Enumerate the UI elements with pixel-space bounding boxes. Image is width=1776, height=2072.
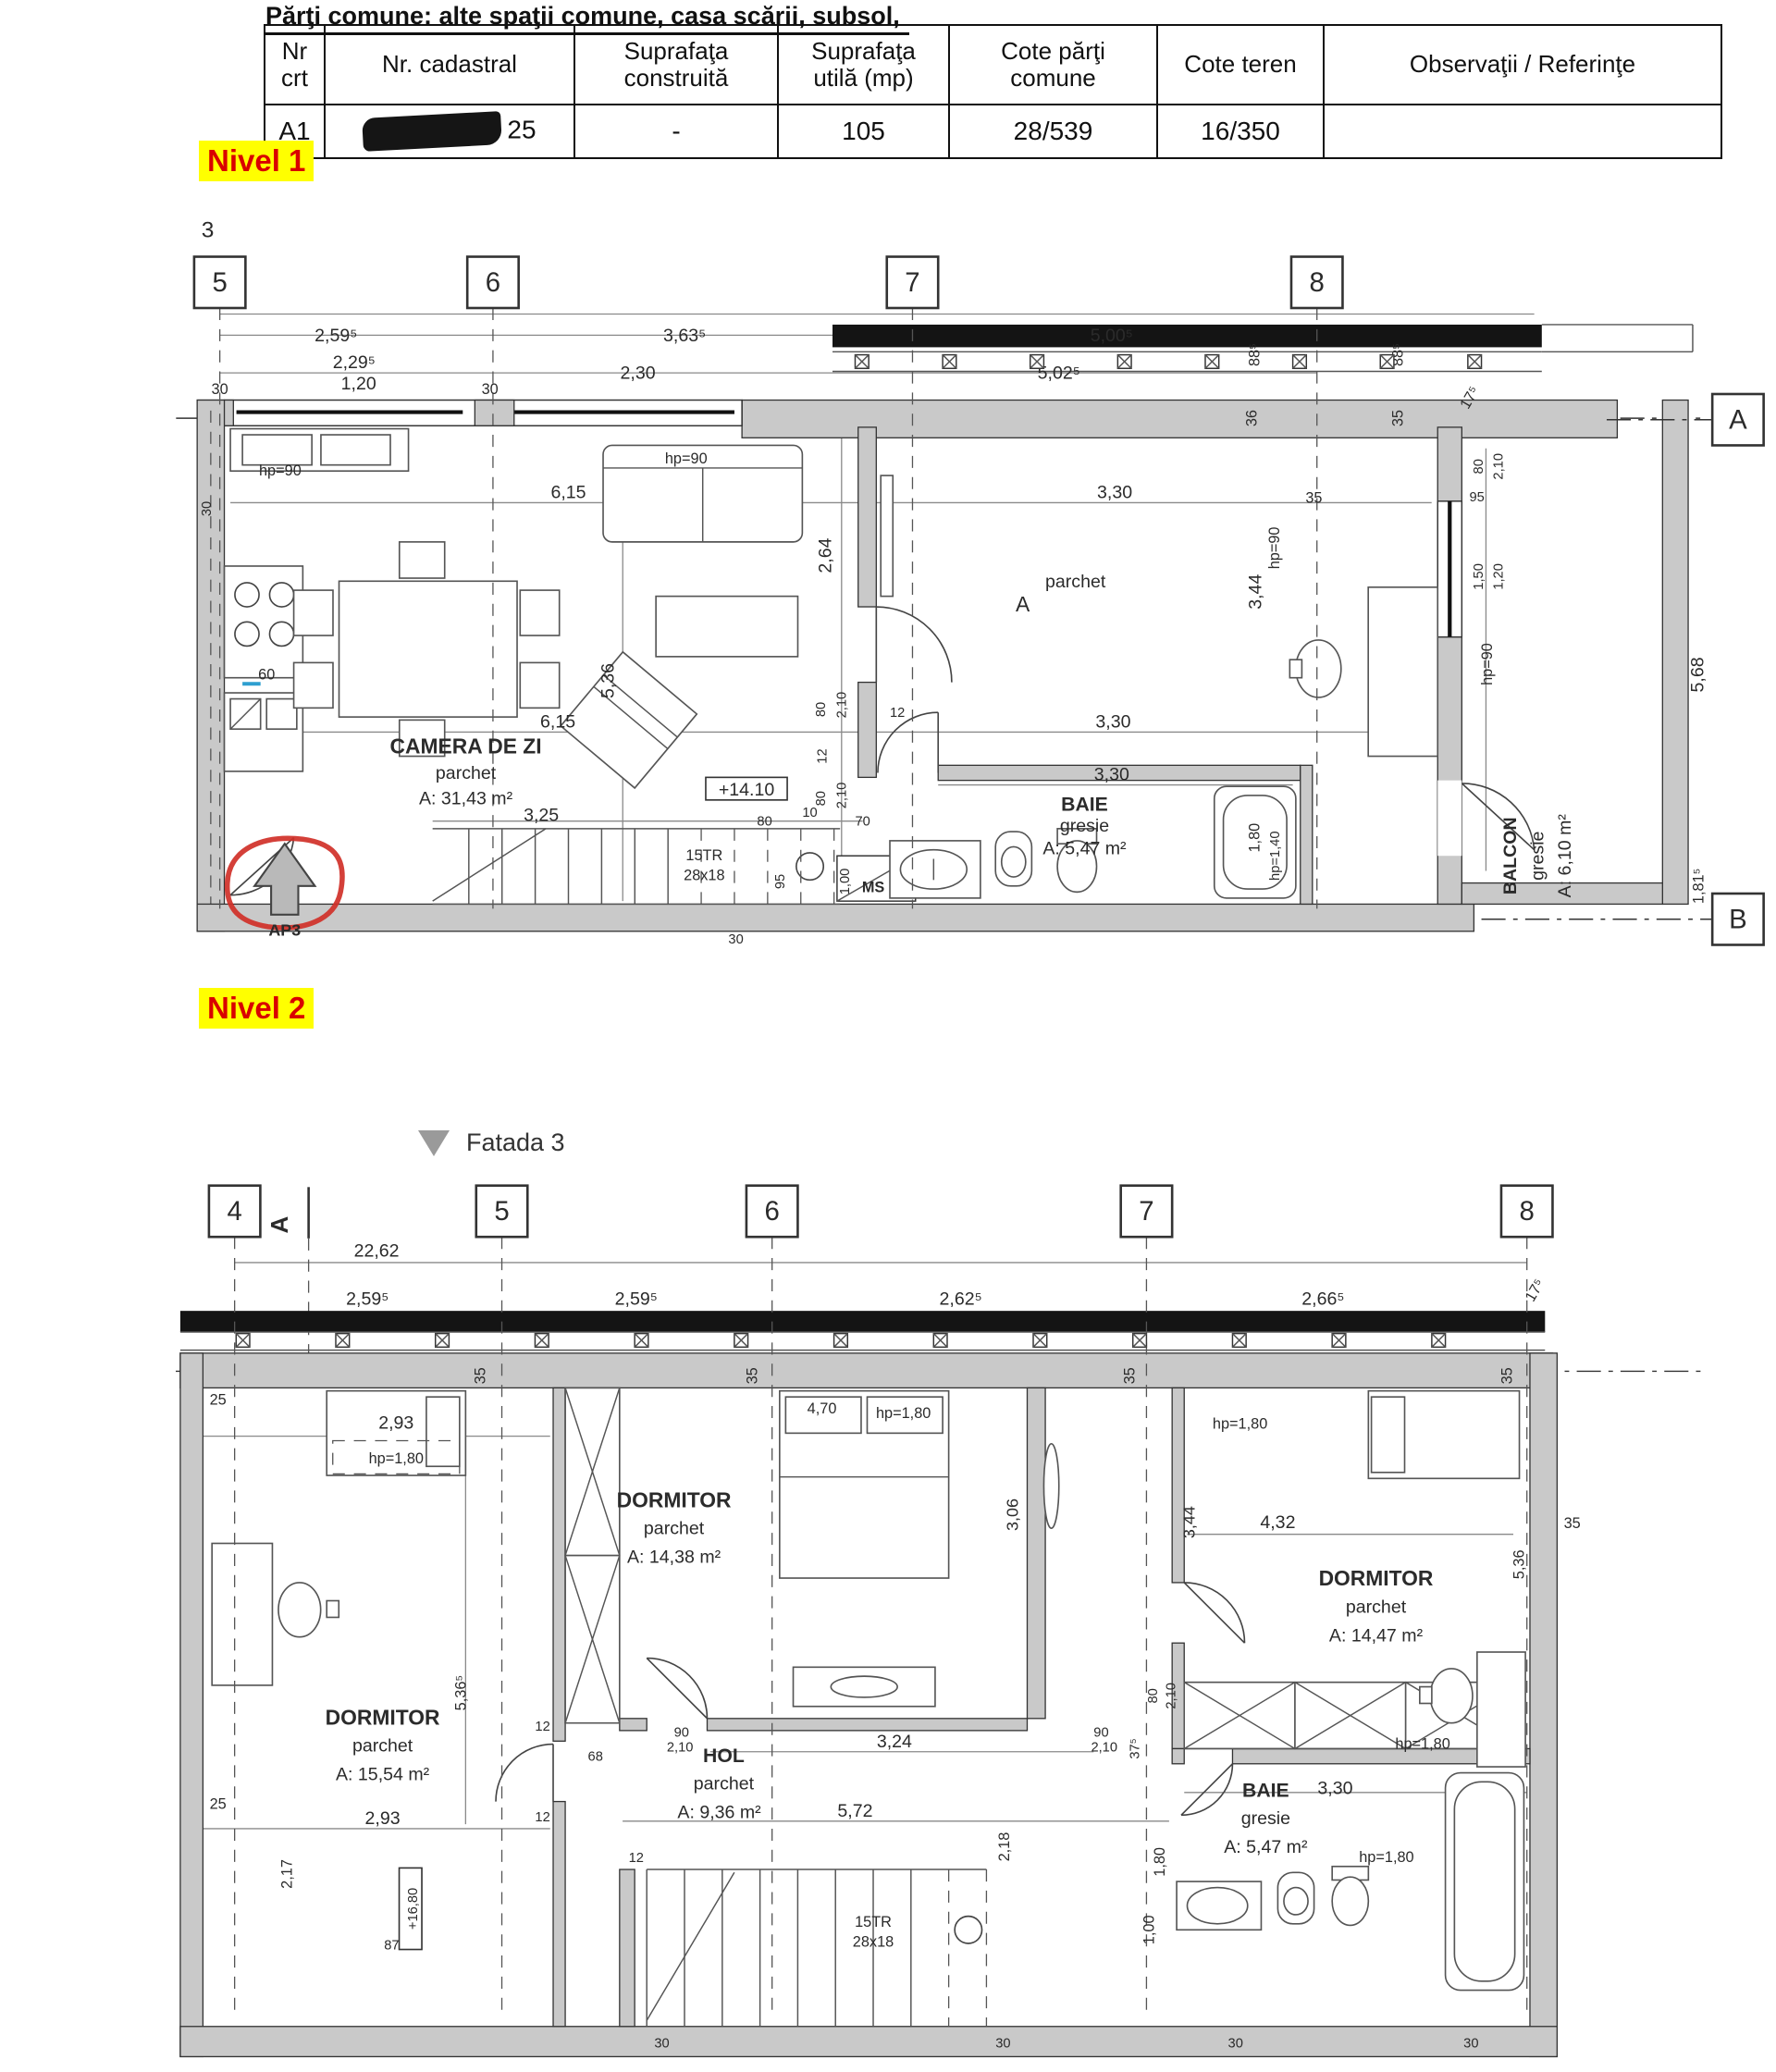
table-header-row: Nr crt Nr. cadastral Suprafaţa construit…	[265, 25, 1721, 105]
dim-label: 1,00	[1141, 1915, 1158, 1944]
dim-label: 6,15	[540, 712, 575, 733]
dim-label: 68	[588, 1750, 603, 1765]
desk	[1368, 587, 1437, 757]
dim-label: 2,10	[835, 692, 850, 719]
room-finish: gresie	[1527, 831, 1548, 880]
dim-label: hp=90	[1479, 643, 1496, 685]
level-mark: +16,80	[400, 1868, 422, 1949]
dim-label: 3,44	[1245, 574, 1265, 610]
room-label: BAIE	[1061, 794, 1108, 815]
grid-bubble-5: 5	[476, 1186, 527, 2017]
room-area: A: 5,47 m²	[1042, 839, 1127, 859]
dim-label: hp=1,80	[1395, 1735, 1449, 1752]
room-finish: parchet	[352, 1736, 413, 1757]
apartment-label: AP3	[268, 921, 301, 940]
dim-label: hp=1,80	[1359, 1849, 1413, 1866]
col-cote-parti: Cote părţi comune	[949, 25, 1157, 105]
dim-label: 2,64	[815, 537, 835, 573]
room-area: A: 15,54 m²	[336, 1765, 430, 1785]
window-post-row	[855, 355, 1481, 369]
tv-cabinet	[881, 475, 893, 597]
dim-label: 70	[855, 815, 869, 830]
mirror-icon	[1043, 1444, 1058, 1528]
room-area: A: 31,43 m²	[419, 789, 513, 809]
dim-label: 2,59⁵	[346, 1289, 388, 1310]
kitchen-sink-icon	[225, 684, 303, 771]
col-suprafata-utila: Suprafaţa utilă (mp)	[778, 25, 949, 105]
dim-label: 30	[654, 2037, 669, 2052]
dresser	[794, 1667, 935, 1706]
room-finish: parchet	[694, 1774, 755, 1794]
dim-label: 30	[200, 501, 215, 516]
grid-axis-label: 7	[905, 267, 919, 298]
room-finish: parchet	[644, 1519, 705, 1539]
col-cote-teren: Cote teren	[1157, 25, 1324, 105]
bath-sink-icon	[1177, 1881, 1261, 1930]
dim-label: 3,30	[1097, 483, 1132, 503]
dim-label: 4,70	[808, 1400, 837, 1417]
table-row: A1 25 - 105 28/539 16/350	[265, 105, 1721, 158]
dim-label: 90	[1093, 1725, 1108, 1740]
dim-label: hp=1,80	[876, 1405, 931, 1422]
dim-label: 1,20	[1491, 563, 1506, 590]
kitchen-counter	[230, 429, 409, 472]
grid-axis-label: 4	[227, 1196, 241, 1227]
chaise-rotated	[561, 652, 697, 788]
dim-label: 12	[890, 706, 905, 721]
grid-axis-label: 8	[1310, 267, 1325, 298]
dim-label: 2,29⁵	[333, 352, 376, 373]
floor-plan-level-2: 45678A22,622,59⁵2,59⁵2,62⁵2,66⁵17⁵353535…	[176, 1175, 1776, 2072]
room-label: HOL	[703, 1745, 745, 1767]
dim-label: 12	[535, 1720, 549, 1734]
dim-label: 2,59⁵	[615, 1289, 658, 1310]
dim-label: 2,66⁵	[1301, 1289, 1344, 1310]
facade-triangle-icon	[418, 1130, 450, 1156]
dining-table	[294, 542, 560, 757]
room-finish: parchet	[1045, 572, 1106, 592]
grid-bubble-6: 6	[746, 1186, 797, 2017]
dim-label: 80	[1472, 459, 1486, 474]
desk	[1477, 1652, 1525, 1767]
dim-label: 88⁵	[1247, 343, 1264, 366]
stairs-label: 28x18	[684, 867, 724, 883]
grid-axis-label: 5	[212, 267, 227, 298]
cadastral-visible-digits: 25	[507, 115, 536, 143]
dim-label: 1,20	[341, 374, 376, 394]
dim-label: 35	[1498, 1367, 1515, 1384]
grid-axis-label: B	[1729, 905, 1747, 935]
dim-label: 6,15	[550, 483, 586, 503]
coffee-table	[656, 597, 797, 657]
cadastral-table: Nr crt Nr. cadastral Suprafaţa construit…	[264, 24, 1722, 159]
dim-label: 87	[384, 1939, 399, 1954]
level-1-heading: Nivel 1	[199, 141, 314, 181]
dim-label: 5,36⁵	[452, 1675, 469, 1711]
dim-label: 3,24	[877, 1732, 912, 1752]
room-label-ms: MS	[862, 879, 885, 895]
dim-label: 2,10	[1164, 1683, 1178, 1709]
scanned-cadastral-document: { "header": {"line": "Părţi comune: alte…	[0, 0, 1776, 2072]
dim-label: hp=1,80	[1213, 1415, 1267, 1432]
dim-label: 2,10	[667, 1741, 694, 1756]
dim-label: 95	[1469, 490, 1484, 505]
dim-label: 12	[629, 1851, 644, 1866]
dim-label: 25	[210, 1796, 227, 1813]
dim-label: 17⁵	[1522, 1276, 1548, 1305]
room-finish: parchet	[1346, 1597, 1407, 1618]
dim-label: hp=1,40	[1268, 831, 1283, 880]
cell-suprafata-utila: 105	[778, 105, 949, 158]
room-area: A: 14,38 m²	[627, 1548, 721, 1568]
dim-label: 2,10	[1091, 1741, 1117, 1756]
cell-nr-cadastral: 25	[325, 105, 574, 158]
level-mark-text: +14.10	[719, 780, 774, 800]
dim-label: hp=1,80	[369, 1450, 424, 1467]
dim-label: 60	[258, 666, 275, 683]
sheet-note: 3	[202, 217, 215, 242]
dim-label: 30	[728, 932, 743, 947]
room-label: DORMITOR	[617, 1487, 732, 1511]
toilet-icon	[1332, 1867, 1368, 1926]
staircase	[647, 1869, 986, 2027]
cell-cote-teren: 16/350	[1157, 105, 1324, 158]
cell-observatii	[1324, 105, 1721, 158]
dim-label: 35	[1564, 1515, 1581, 1532]
dim-label: 35	[473, 1367, 489, 1384]
grid-axis-label: 6	[486, 267, 500, 298]
col-observatii: Observaţii / Referinţe	[1324, 25, 1721, 105]
col-nr-crt: Nr crt	[265, 25, 325, 105]
room-label: BAIE	[1242, 1781, 1289, 1802]
grid-axis-label: 5	[494, 1196, 509, 1227]
dim-label: 2,59⁵	[314, 326, 357, 346]
dim-label: 22,62	[354, 1240, 400, 1261]
dim-label: 1,00	[838, 869, 853, 895]
dim-label: 4,32	[1260, 1512, 1295, 1533]
room-finish: gresie	[1241, 1808, 1290, 1829]
room-label: DORMITOR	[1319, 1566, 1434, 1590]
dim-label: 2,93	[365, 1808, 401, 1829]
room-finish: gresie	[1060, 816, 1109, 836]
dim-label: 35	[744, 1367, 760, 1384]
room-label: DORMITOR	[326, 1705, 440, 1729]
dim-label: 12	[815, 748, 830, 763]
dim-label: 35	[1121, 1367, 1138, 1384]
dim-label: 3,63⁵	[663, 326, 706, 346]
dim-label: 35	[1305, 489, 1322, 506]
dim-label: 12	[535, 1810, 549, 1825]
dim-label: 5,68	[1687, 657, 1708, 692]
dim-label: 2,10	[835, 783, 850, 809]
dim-label: 80	[1146, 1688, 1161, 1703]
facade-label: Fatada 3	[466, 1128, 565, 1157]
dim-label: 10	[802, 806, 817, 820]
dim-label: 2,30	[621, 364, 656, 384]
level-mark-text: +16,80	[406, 1888, 421, 1930]
level-2-heading: Nivel 2	[199, 988, 314, 1029]
stairs-label: 15TR	[855, 1914, 892, 1930]
dim-label: hp=90	[1266, 527, 1283, 570]
dim-label: 30	[1228, 2037, 1243, 2052]
stove-icon	[225, 566, 303, 678]
room-area: A: 9,36 m²	[677, 1803, 761, 1823]
grid-bubble-7: 7	[1121, 1186, 1172, 2017]
grid-axis-label: 8	[1520, 1196, 1535, 1227]
wardrobe	[565, 1387, 620, 1722]
dim-label: 3,30	[1095, 712, 1130, 733]
dim-label: 30	[995, 2037, 1010, 2052]
dim-label: 3,30	[1317, 1778, 1352, 1798]
dim-label: 2,18	[996, 1832, 1013, 1862]
section-label: A	[1016, 592, 1030, 616]
dim-label: 30	[1463, 2037, 1478, 2052]
dim-label: 3,44	[1180, 1506, 1199, 1538]
dim-label: 5,36	[1511, 1549, 1527, 1579]
grid-axis-label: A	[1729, 405, 1747, 436]
dim-label: 3,30	[1094, 765, 1129, 785]
desk	[212, 1544, 272, 1685]
bathtub-icon	[1446, 1773, 1524, 1991]
col-suprafata-construita: Suprafaţa construită	[574, 25, 778, 105]
dim-label: 5,36	[598, 663, 618, 698]
dim-label: 3,06	[1004, 1498, 1022, 1531]
dim-label: 3,25	[524, 806, 559, 826]
level-mark: +14.10	[706, 777, 787, 800]
grid-axis-label: 6	[764, 1196, 779, 1227]
stairs-label: 28x18	[853, 1933, 894, 1950]
room-area: A: 5,47 m²	[1224, 1837, 1308, 1857]
dim-label: 2,17	[279, 1859, 296, 1889]
dim-label: 90	[674, 1725, 689, 1740]
dim-label: 36	[1243, 410, 1260, 426]
window-post-row	[236, 1334, 1445, 1348]
room-label: BALCON	[1500, 817, 1521, 894]
dim-label: 25	[210, 1391, 227, 1408]
dim-label: 95	[773, 874, 788, 889]
dim-label: 5,72	[837, 1801, 872, 1821]
room-area: A: 6,10 m²	[1555, 814, 1575, 898]
office-chair-icon	[278, 1583, 339, 1637]
dim-label: 80	[814, 791, 829, 806]
dim-label: 2,10	[1491, 453, 1506, 480]
office-chair-icon	[1289, 640, 1340, 697]
dim-label: 80	[757, 815, 771, 830]
dim-label: 30	[482, 381, 499, 398]
bed	[1368, 1391, 1519, 1479]
staircase	[433, 829, 840, 905]
col-nr-cadastral: Nr. cadastral	[325, 25, 574, 105]
dim-label: 1,81⁵	[1690, 869, 1707, 904]
dim-label: 35	[1390, 410, 1407, 426]
dim-label: 1,50	[1472, 563, 1486, 590]
room-area: A: 14,47 m²	[1329, 1626, 1424, 1646]
bath-sink-icon	[890, 841, 980, 898]
dim-label: 5,00⁵	[1091, 326, 1133, 346]
bidet-icon	[995, 832, 1031, 886]
dim-label: 2,62⁵	[940, 1289, 982, 1310]
stairs-label: 15TR	[685, 847, 722, 864]
dim-label: 1,80	[1247, 823, 1264, 853]
dim-label: 1,80	[1152, 1847, 1168, 1877]
dim-label: 80	[814, 702, 829, 717]
redaction-blob	[363, 111, 503, 152]
dim-label: 2,93	[378, 1412, 413, 1433]
floor-plan-level-1: 5678AB32,59⁵3,63⁵5,00⁵2,29⁵1,202,305,02⁵…	[176, 222, 1776, 980]
dim-label: 37⁵	[1128, 1738, 1142, 1758]
cell-cote-parti: 28/539	[949, 105, 1157, 158]
dim-label: 30	[212, 381, 228, 398]
section-marker: A	[265, 1216, 293, 1234]
facade-callout: Fatada 3	[418, 1128, 565, 1157]
bidet-icon	[1277, 1872, 1313, 1923]
grid-bubble-7: 7	[887, 257, 938, 909]
room-finish: parchet	[436, 763, 497, 783]
dim-label: hp=90	[259, 462, 302, 479]
cell-suprafata-construita: -	[574, 105, 778, 158]
dim-label: hp=90	[665, 450, 708, 467]
room-label: CAMERA DE ZI	[390, 734, 542, 758]
grid-axis-label: 7	[1139, 1196, 1153, 1227]
